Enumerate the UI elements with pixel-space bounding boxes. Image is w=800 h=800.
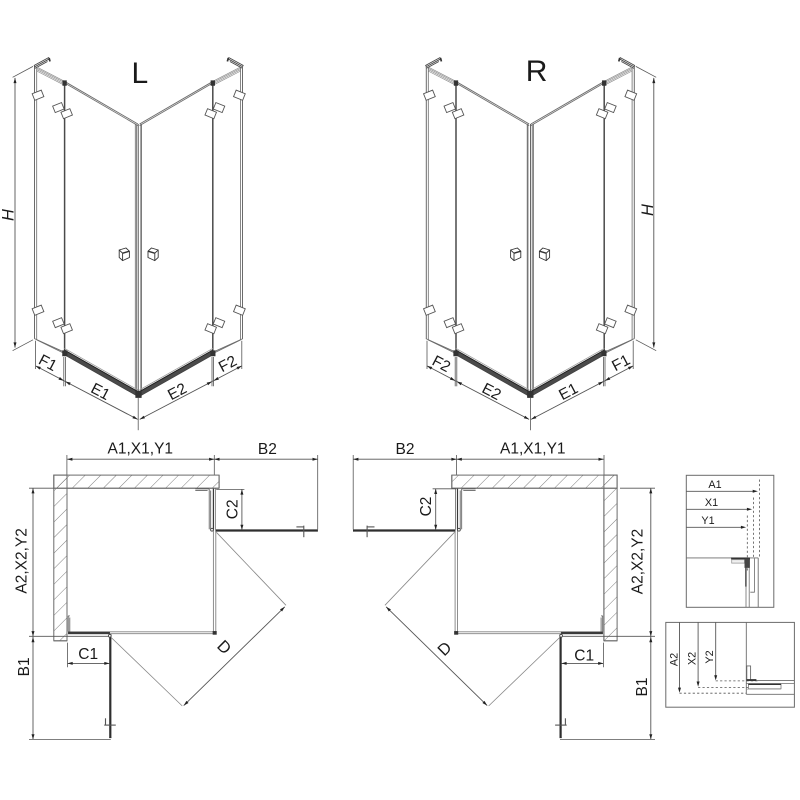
svg-text:B1: B1 [16,657,33,676]
svg-text:C1: C1 [78,646,98,663]
svg-text:F2: F2 [216,353,240,376]
svg-text:R: R [526,55,548,88]
svg-text:C2: C2 [224,499,241,519]
svg-text:X2: X2 [687,652,699,665]
svg-text:C2: C2 [418,497,435,517]
svg-text:F2: F2 [429,353,453,376]
svg-text:A1: A1 [708,479,721,491]
svg-text:C1: C1 [574,647,594,664]
svg-text:E1: E1 [556,380,581,404]
svg-text:B2: B2 [396,441,415,458]
svg-text:A2: A2 [669,653,681,666]
svg-text:L: L [132,57,149,90]
svg-text:A2,X2,Y2: A2,X2,Y2 [13,528,30,594]
svg-text:A2,X2,Y2: A2,X2,Y2 [630,529,647,595]
svg-text:E2: E2 [479,380,504,404]
svg-text:H: H [639,204,657,216]
svg-text:F1: F1 [36,352,60,375]
svg-text:A1,X1,Y1: A1,X1,Y1 [500,441,566,458]
svg-text:E2: E2 [165,380,190,404]
svg-text:E1: E1 [88,380,113,404]
svg-text:Y1: Y1 [701,515,714,527]
svg-text:A1,X1,Y1: A1,X1,Y1 [108,441,174,458]
svg-text:Y2: Y2 [704,650,716,663]
svg-text:D: D [213,637,234,658]
svg-text:H: H [0,209,18,221]
svg-text:D: D [434,638,455,659]
svg-text:F1: F1 [609,352,633,375]
svg-text:X1: X1 [705,497,718,509]
svg-text:B1: B1 [634,678,651,697]
svg-text:B2: B2 [258,441,277,458]
